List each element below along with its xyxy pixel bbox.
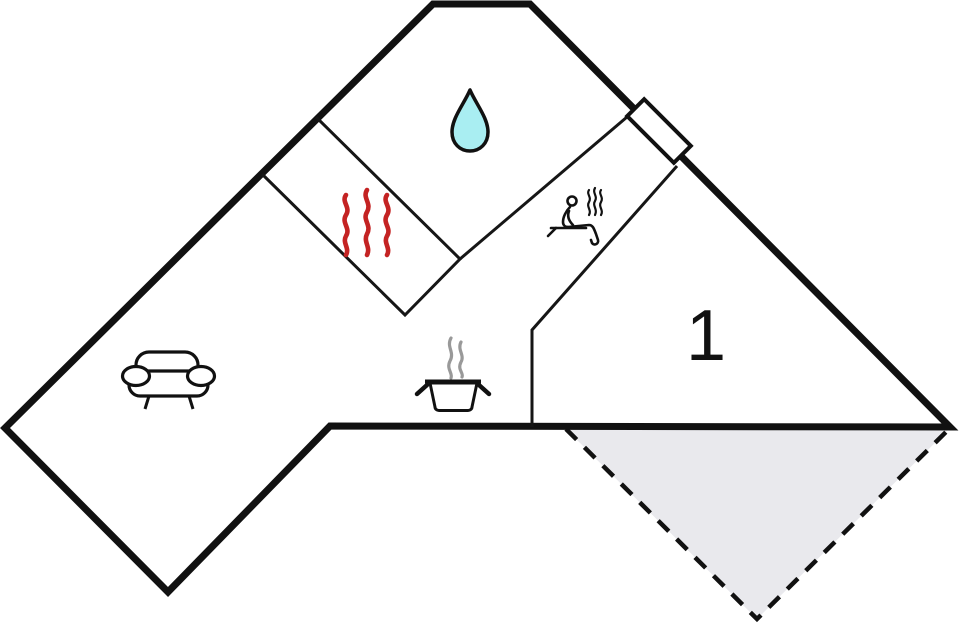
terrace-fill xyxy=(566,429,949,619)
heat-wave-line xyxy=(386,195,389,255)
floor-plan: 1 xyxy=(0,0,960,627)
heat-wave-line xyxy=(366,190,369,255)
room-number-label: 1 xyxy=(686,296,726,376)
sofa-armrest-right xyxy=(188,367,215,386)
pot-body xyxy=(430,383,477,411)
sofa-armrest-left xyxy=(123,367,150,386)
terrace-dashed-area xyxy=(566,429,949,619)
floor-plan-canvas: 1 xyxy=(0,0,960,627)
heat-wave-line xyxy=(345,195,348,255)
